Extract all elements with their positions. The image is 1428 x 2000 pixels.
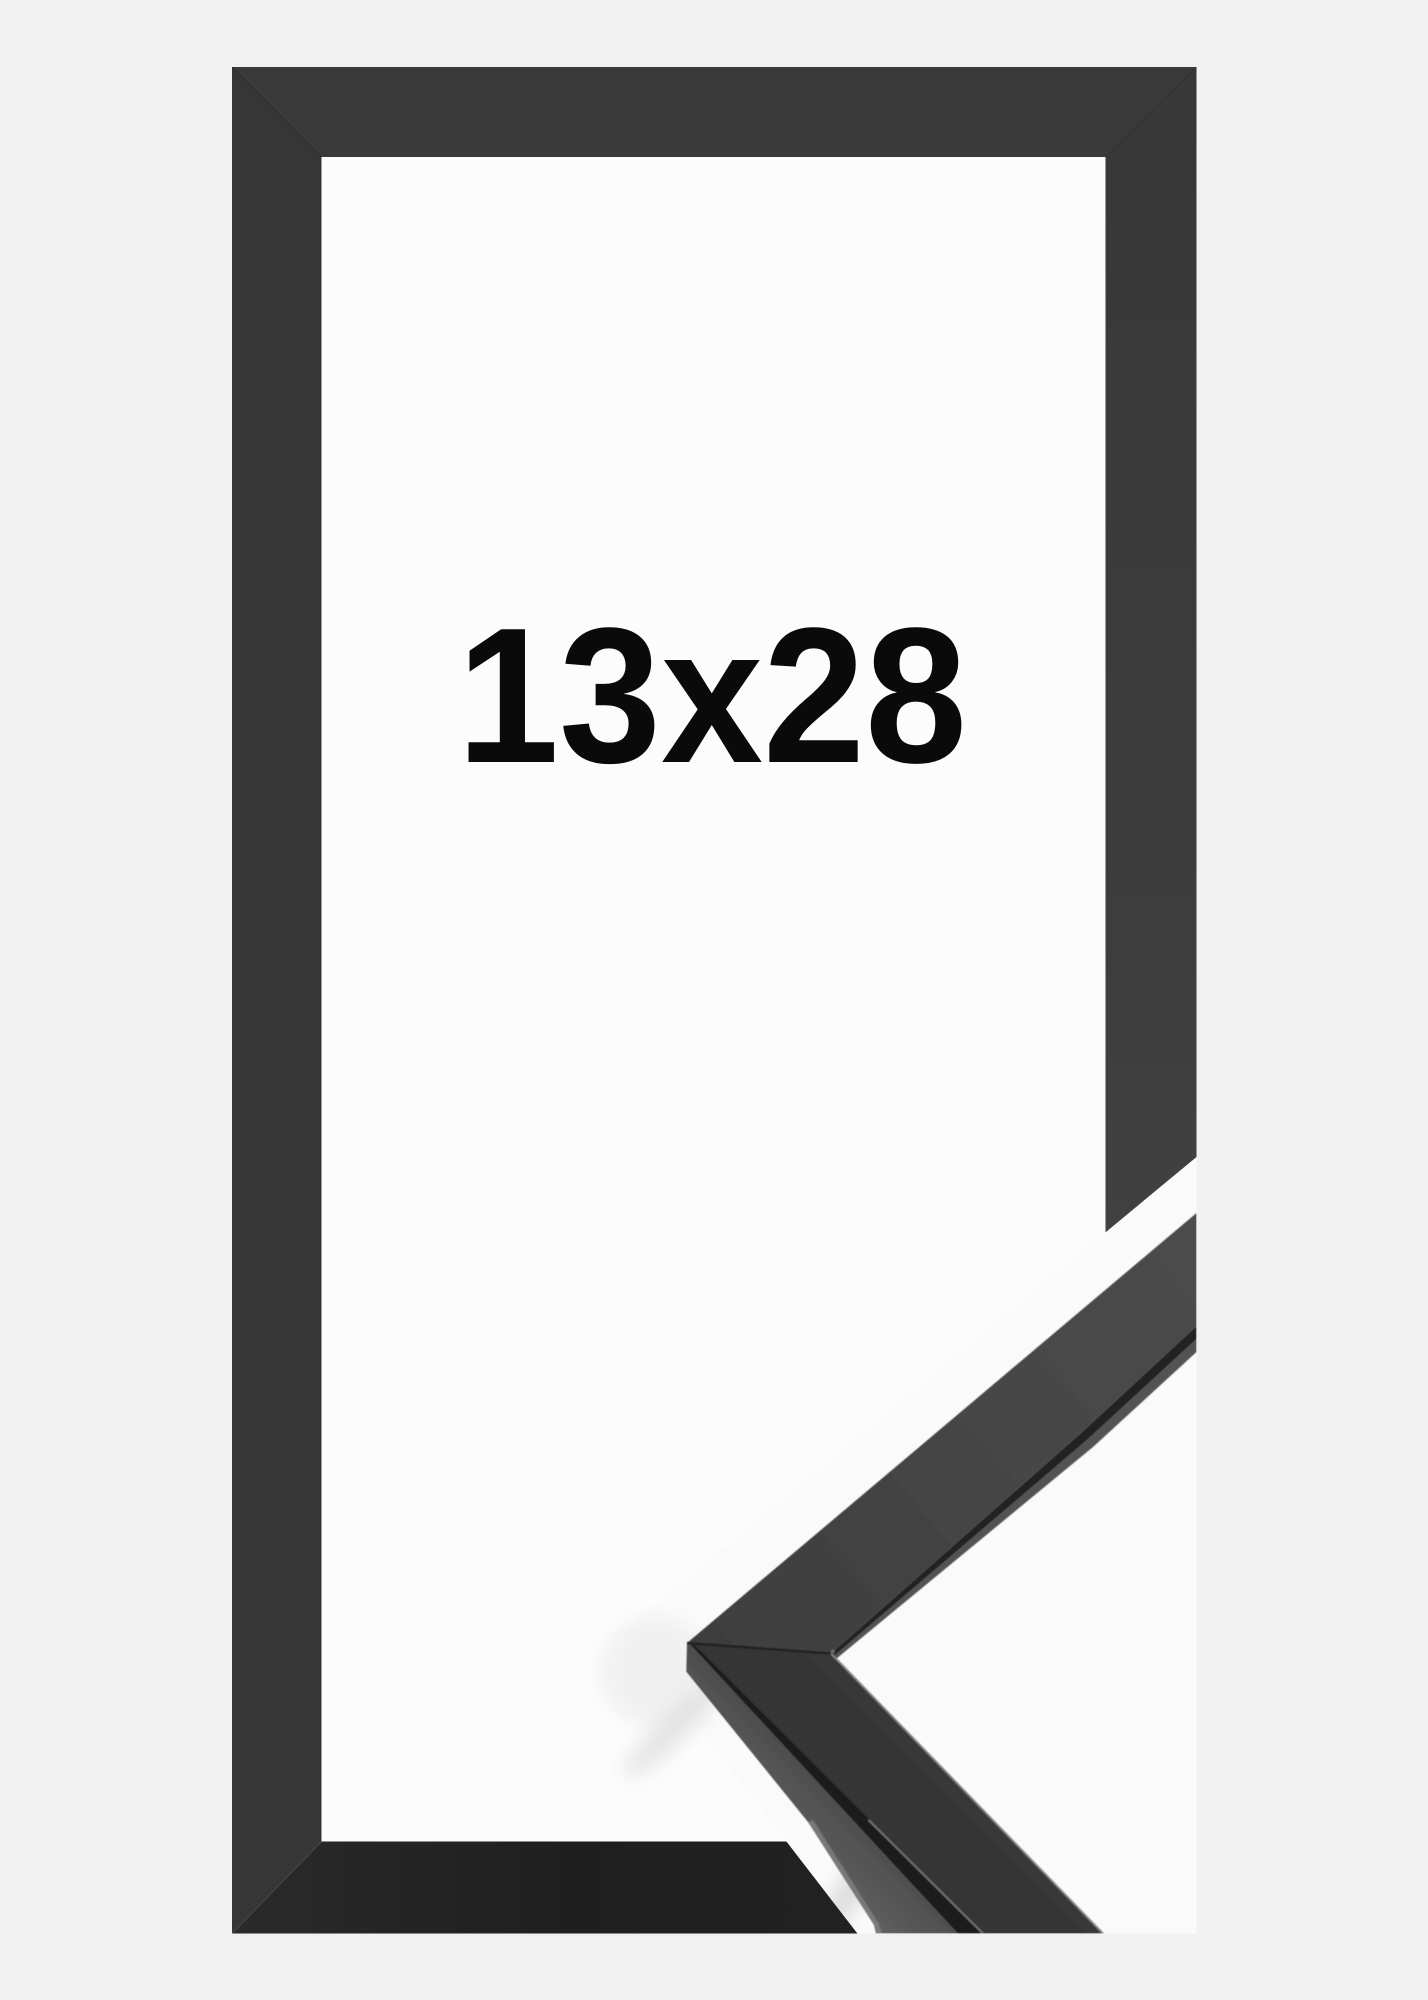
svg-text:13x28: 13x28 — [457, 587, 967, 803]
